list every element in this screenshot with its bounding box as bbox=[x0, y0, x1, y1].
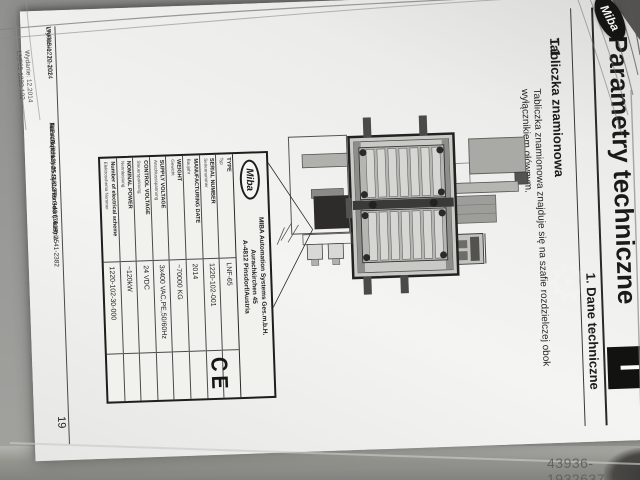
ce-mark: CE bbox=[204, 357, 232, 394]
machine-post bbox=[419, 115, 428, 135]
manual-page: Parametry techniczne I 1. Dane techniczn… bbox=[20, 0, 640, 461]
machine-hopper bbox=[469, 137, 526, 174]
section-title: Tabliczka znamionowa bbox=[547, 38, 567, 178]
nameplate-address: MIBA Automation Systems Ges.m.b.H. Aurac… bbox=[238, 205, 268, 348]
machine-conveyor bbox=[456, 195, 497, 223]
machine-post bbox=[363, 117, 372, 137]
row-value: ~70000 KG bbox=[170, 260, 189, 352]
machine-box bbox=[328, 243, 344, 259]
machine-press-section-right bbox=[361, 208, 448, 263]
row-value: 24 VDC bbox=[137, 261, 156, 353]
machine-box bbox=[307, 244, 323, 260]
machine-switch-cabinet bbox=[311, 188, 352, 229]
machine-press-section-left bbox=[359, 145, 446, 200]
page-title: Parametry techniczne bbox=[602, 35, 640, 305]
machine-rail bbox=[302, 153, 347, 168]
document-number: LNF65-1220-102 bbox=[43, 26, 53, 75]
row-value: 1220-102-30-000 bbox=[104, 262, 123, 354]
row-value: 1220-102-001 bbox=[203, 259, 222, 351]
row-value: ~120kW bbox=[120, 262, 139, 354]
chapter-marker-box: I bbox=[607, 346, 640, 390]
footer-edition: Wydanie: 12.2014 LNF65-1220-102 bbox=[43, 26, 54, 122]
nameplate: Miba MIBA Automation Systems Ges.m.b.H. … bbox=[98, 151, 277, 404]
machine-post bbox=[400, 275, 409, 293]
page-number: 19 bbox=[56, 388, 66, 444]
row-value: LNF-65 bbox=[220, 258, 239, 350]
photo-of-manual-page: Parametry techniczne I 1. Dane techniczn… bbox=[0, 0, 640, 480]
row-value: 2014 bbox=[187, 259, 206, 351]
row-value: 3x400 VAC,PE,50/60Hz bbox=[154, 260, 173, 352]
machine-post bbox=[363, 276, 372, 294]
miba-logo-icon: Miba bbox=[239, 159, 260, 200]
watermark-gear-icon: ⚙ bbox=[537, 259, 597, 306]
watermark-id: 43936-1932637 bbox=[547, 455, 640, 480]
machine-drawing bbox=[250, 94, 540, 404]
